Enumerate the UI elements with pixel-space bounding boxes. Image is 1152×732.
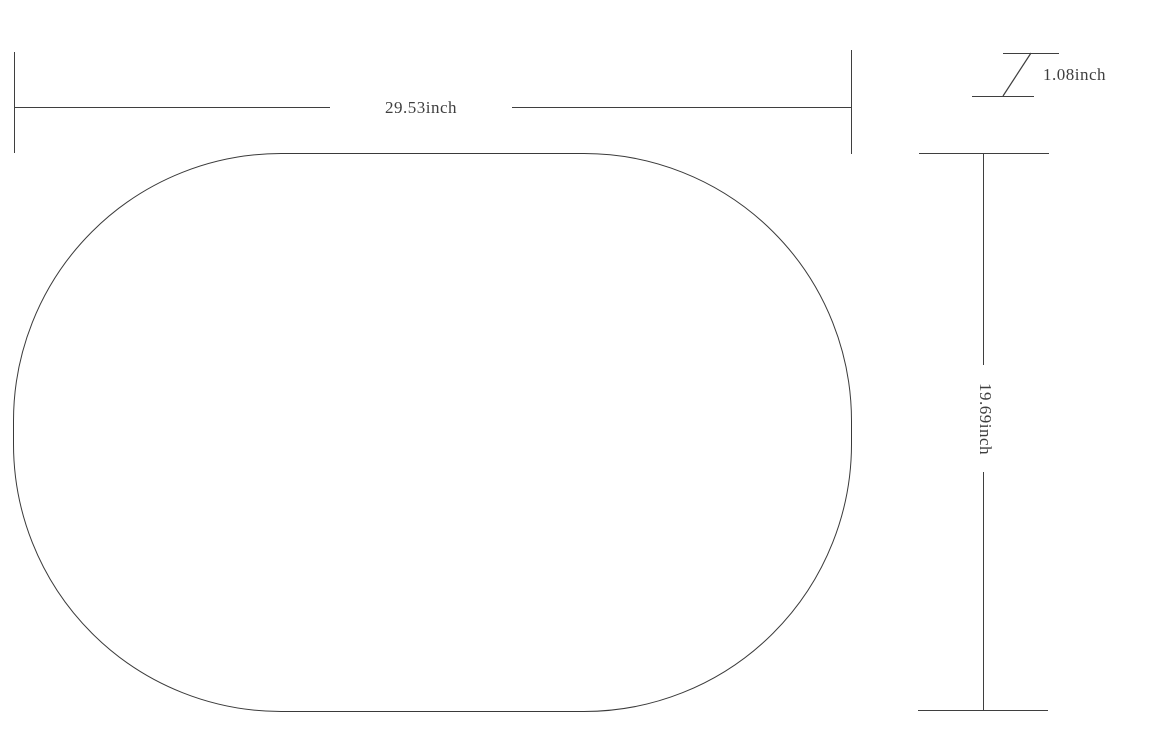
width-dimension-tick-right (851, 50, 852, 154)
width-dimension-line-right (512, 107, 851, 108)
width-dimension-tick-left (14, 52, 15, 153)
height-dimension-label: 19.69inch (974, 383, 996, 455)
height-dimension-line-bottom (983, 472, 984, 710)
thickness-symbol-diagonal-line (995, 50, 1040, 100)
dimension-diagram-canvas: 29.53inch 19.69inch 1.08inch (0, 0, 1152, 732)
height-dimension-line-top (983, 153, 984, 365)
height-dimension-tick-bottom (918, 710, 1048, 711)
height-dimension-tick-top (919, 153, 1049, 154)
width-dimension-label: 29.53inch (330, 96, 512, 120)
oval-shape-outline (13, 153, 852, 712)
width-dimension-line-left (14, 107, 330, 108)
thickness-dimension-label: 1.08inch (1043, 64, 1106, 86)
